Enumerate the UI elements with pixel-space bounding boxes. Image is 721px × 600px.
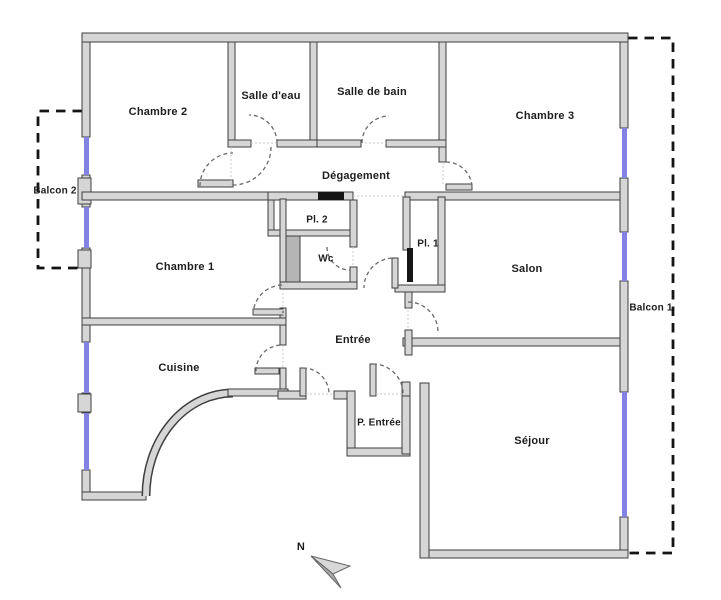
window-chambre2 (84, 137, 89, 175)
landing-door-leaf (300, 368, 306, 396)
duct-shaft (286, 236, 300, 282)
cuisine-door-leaf (255, 368, 279, 374)
room-label-chambre3: Chambre 3 (516, 110, 575, 122)
room-label-degagement: Dégagement (322, 170, 390, 182)
salle-deau-door-arc (249, 115, 277, 143)
window-sejour (622, 392, 627, 517)
window-salon (622, 232, 627, 281)
front-door-leaf (370, 364, 376, 396)
room-label-pl1: Pl. 1 (417, 239, 439, 250)
pl2-door-leaf (318, 192, 344, 200)
room-label-balcon2: Balcon 2 (33, 186, 76, 197)
room-label-salle-deau: Salle d'eau (241, 90, 300, 102)
door-swing-arcs (200, 115, 472, 394)
window-cuisine-1 (84, 342, 89, 393)
north-arrow-icon (311, 556, 350, 588)
salle-de-bain-door-arc (362, 116, 389, 143)
room-label-salle-de-bain: Salle de bain (337, 86, 407, 98)
front-door-arc (373, 364, 403, 394)
floor-plan: Chambre 2 Salle d'eau Salle de bain Cham… (0, 0, 721, 600)
room-label-sejour: Séjour (514, 435, 549, 447)
corridor-door-leaf (392, 258, 398, 288)
room-label-chambre1: Chambre 1 (156, 261, 215, 273)
interior-walls (82, 42, 620, 456)
room-label-entree: Entrée (335, 334, 370, 346)
room-label-p-entree: P. Entrée (357, 418, 401, 429)
chambre1-door-leaf (253, 309, 283, 315)
north-label: N (297, 541, 305, 553)
degagement-door-arc (233, 147, 271, 185)
chambre3-door-leaf (446, 184, 472, 190)
room-label-cuisine: Cuisine (158, 362, 199, 374)
pl1-door-leaf (407, 248, 413, 282)
room-label-pl2: Pl. 2 (306, 215, 328, 226)
room-label-wc: Wc (318, 254, 333, 265)
room-label-balcon1: Balcon 1 (629, 303, 672, 314)
corridor-door-arc (364, 258, 392, 288)
curved-wall (146, 393, 233, 496)
window-cuisine-2 (84, 413, 89, 470)
window-chambre1 (84, 207, 89, 248)
room-label-chambre2: Chambre 2 (129, 106, 188, 118)
cuisine-door-arc (256, 345, 282, 371)
balcon-1-outline (628, 38, 673, 553)
landing-door-arc (303, 368, 329, 394)
room-label-salon: Salon (512, 263, 543, 275)
window-chambre3 (622, 128, 627, 178)
